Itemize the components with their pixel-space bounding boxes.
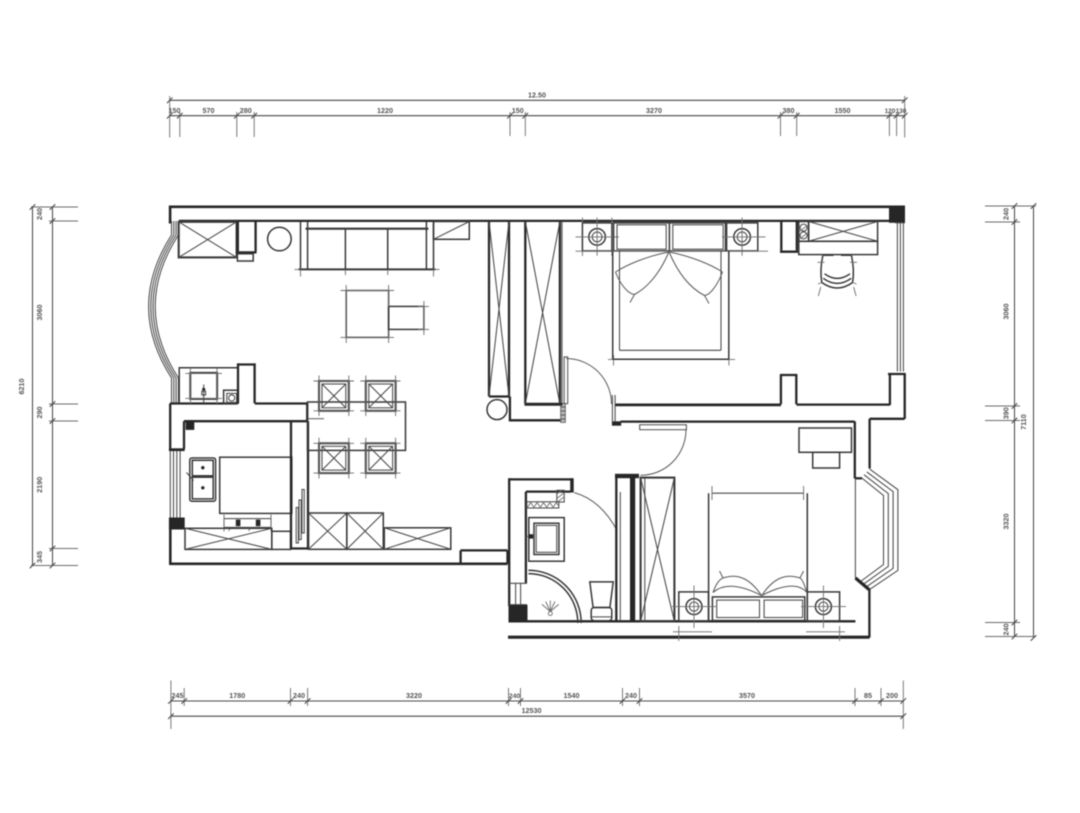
svg-text:380: 380 <box>783 106 795 115</box>
svg-text:3570: 3570 <box>739 691 755 700</box>
svg-text:2190: 2190 <box>35 477 44 493</box>
svg-text:3060: 3060 <box>1002 304 1011 320</box>
svg-text:240: 240 <box>509 693 521 700</box>
svg-text:85: 85 <box>864 691 872 700</box>
svg-text:12530: 12530 <box>522 706 542 715</box>
svg-text:150: 150 <box>169 106 181 115</box>
svg-text:345: 345 <box>35 551 44 563</box>
svg-text:1550: 1550 <box>835 106 851 115</box>
svg-text:120: 120 <box>885 108 896 115</box>
svg-text:3060: 3060 <box>35 305 44 321</box>
svg-text:6210: 6210 <box>17 379 26 395</box>
svg-text:245: 245 <box>172 691 184 700</box>
svg-text:12.50: 12.50 <box>528 91 546 100</box>
svg-text:240: 240 <box>1002 208 1011 220</box>
svg-text:570: 570 <box>203 106 215 115</box>
svg-text:280: 280 <box>240 106 252 115</box>
svg-text:1220: 1220 <box>377 106 393 115</box>
svg-text:390: 390 <box>1002 407 1011 419</box>
svg-text:3320: 3320 <box>1002 514 1011 530</box>
svg-text:3270: 3270 <box>646 106 662 115</box>
svg-text:7110: 7110 <box>1019 414 1028 430</box>
svg-text:240: 240 <box>625 691 637 700</box>
svg-text:200: 200 <box>886 691 898 700</box>
svg-text:240: 240 <box>1002 624 1011 636</box>
svg-text:1780: 1780 <box>229 691 245 700</box>
svg-text:130: 130 <box>896 108 907 115</box>
svg-text:290: 290 <box>35 407 44 419</box>
svg-text:240: 240 <box>293 691 305 700</box>
svg-text:3220: 3220 <box>406 691 422 700</box>
svg-text:1540: 1540 <box>564 691 580 700</box>
svg-text:240: 240 <box>35 208 44 220</box>
svg-text:150: 150 <box>512 106 524 115</box>
